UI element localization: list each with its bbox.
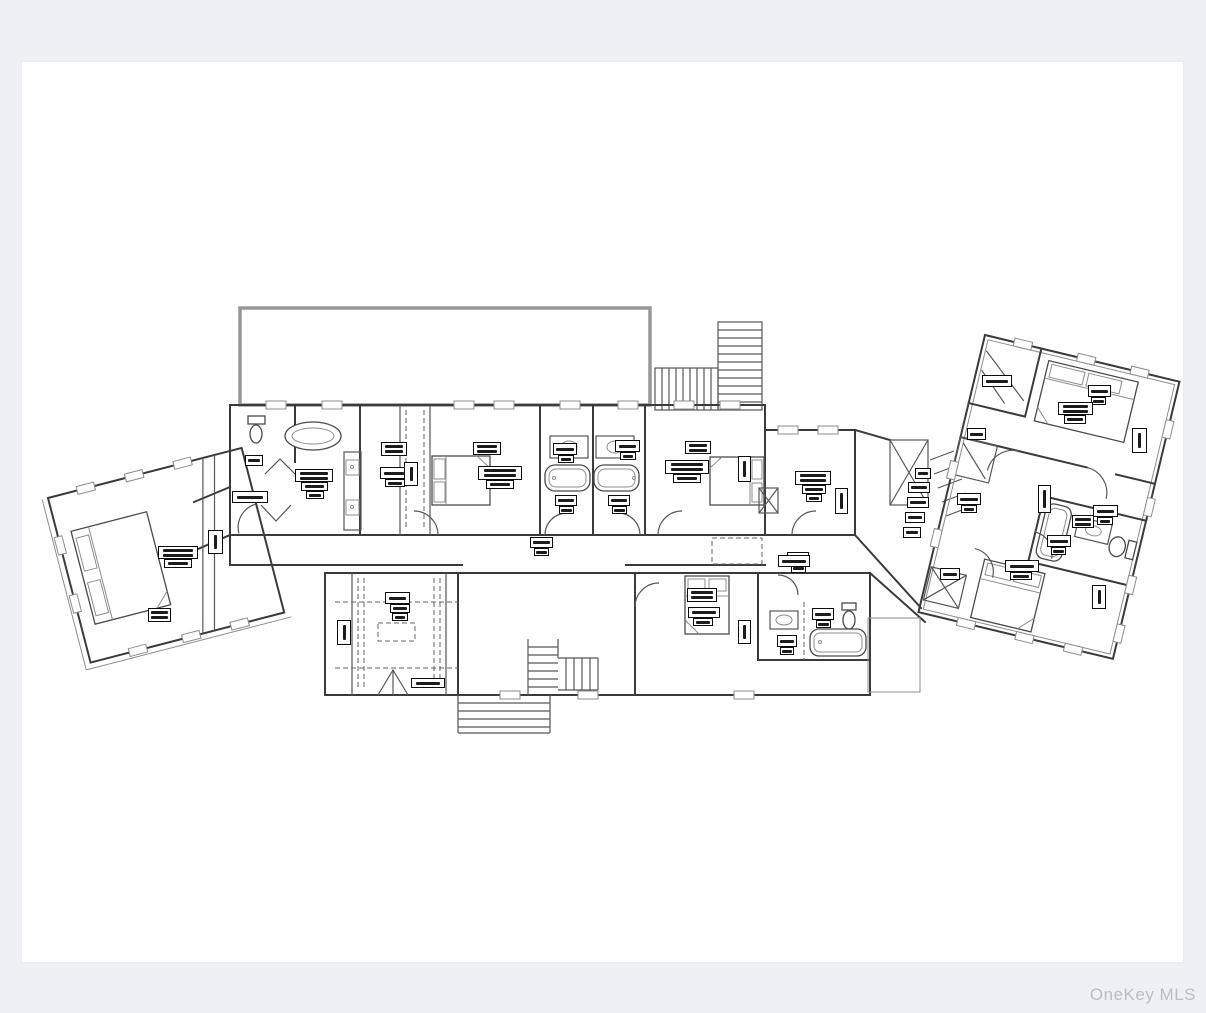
room-label	[148, 608, 171, 622]
room-label	[908, 482, 930, 493]
room-label	[208, 530, 223, 554]
room-label	[957, 493, 981, 505]
room-label	[620, 452, 636, 460]
labels-layer	[22, 62, 1183, 962]
watermark: OneKey MLS	[1090, 985, 1196, 1005]
room-label	[780, 647, 794, 655]
room-label	[608, 495, 630, 506]
room-label	[687, 588, 717, 602]
room-label	[1093, 505, 1118, 517]
room-label	[915, 468, 931, 479]
room-label	[1092, 585, 1106, 609]
room-label	[473, 442, 501, 455]
room-label	[961, 505, 977, 513]
floorplan-image	[22, 62, 1183, 962]
room-label	[559, 506, 574, 514]
room-label	[688, 607, 720, 618]
room-label	[390, 604, 410, 613]
room-label	[1058, 402, 1093, 415]
room-label	[478, 466, 522, 480]
room-label	[738, 456, 751, 482]
room-label	[612, 506, 627, 514]
room-label	[301, 482, 328, 491]
room-label	[1005, 560, 1039, 572]
room-label	[816, 620, 831, 628]
room-label	[693, 618, 713, 626]
room-label	[903, 527, 921, 538]
room-label	[738, 620, 751, 644]
room-label	[534, 548, 549, 556]
room-label	[337, 620, 351, 645]
room-label	[558, 455, 574, 463]
room-label	[1097, 517, 1113, 525]
room-label	[835, 488, 848, 514]
room-label	[385, 592, 410, 604]
room-label	[1051, 547, 1066, 555]
room-label	[392, 613, 408, 621]
room-label	[1091, 397, 1106, 405]
room-label	[1132, 428, 1147, 453]
room-label	[940, 568, 960, 580]
room-label	[802, 485, 826, 494]
room-label	[685, 441, 711, 454]
room-label	[907, 497, 929, 508]
room-label	[555, 495, 577, 506]
room-label	[411, 678, 445, 688]
room-label	[295, 469, 333, 482]
room-label	[404, 462, 418, 486]
room-label	[530, 537, 553, 548]
room-label	[553, 443, 577, 455]
room-label	[795, 471, 831, 485]
room-label	[1010, 572, 1032, 580]
room-label	[164, 559, 192, 568]
room-label	[778, 555, 810, 567]
room-label	[232, 491, 268, 503]
room-label	[1072, 515, 1094, 528]
room-label	[777, 635, 797, 647]
room-label	[806, 494, 822, 502]
room-label	[982, 375, 1012, 387]
room-label	[245, 455, 263, 466]
room-label	[905, 512, 925, 523]
room-label	[1038, 485, 1051, 513]
room-label	[1088, 385, 1111, 397]
room-label	[967, 428, 986, 440]
room-label	[158, 546, 198, 559]
room-label	[665, 460, 709, 474]
room-label	[385, 479, 405, 487]
room-label	[306, 491, 324, 499]
room-label	[615, 440, 640, 452]
room-label	[812, 608, 834, 620]
room-label	[1064, 415, 1086, 424]
room-label	[1047, 535, 1071, 547]
room-label	[486, 480, 514, 489]
room-label	[673, 474, 701, 483]
room-label	[381, 442, 407, 456]
screenshot-canvas: OneKey MLS	[0, 0, 1206, 1013]
